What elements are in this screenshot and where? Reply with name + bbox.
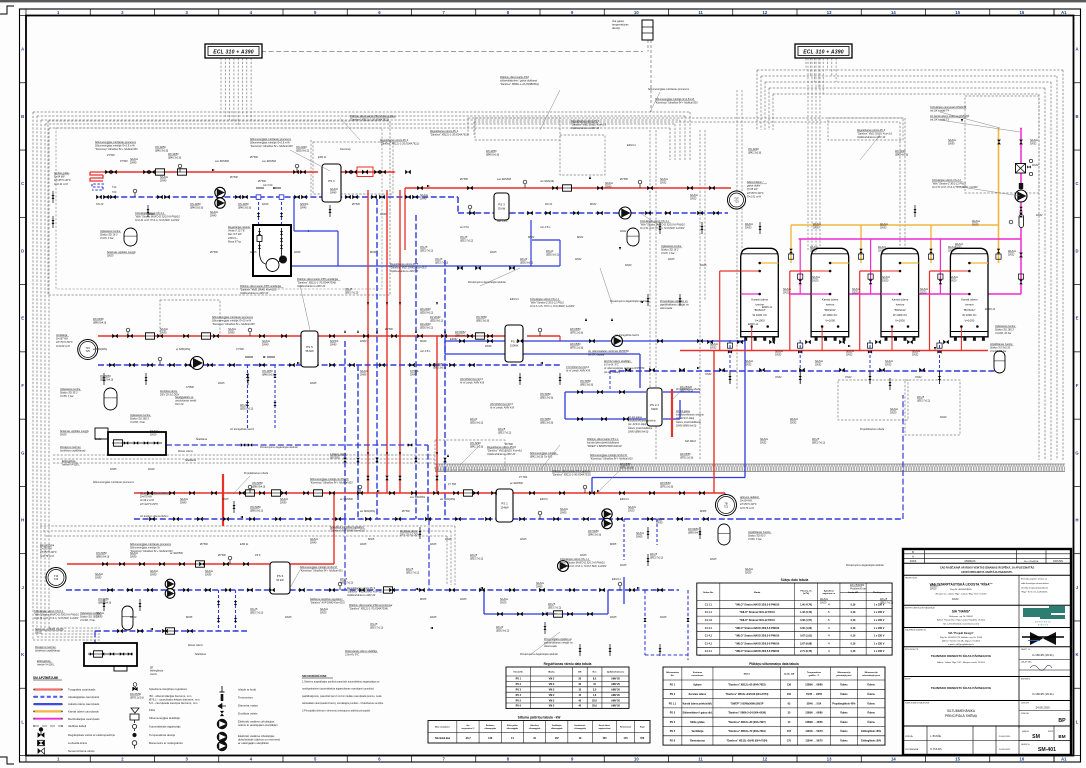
- svg-text:DN60: DN60: [360, 340, 367, 343]
- svg-text:DN25: DN25: [360, 543, 367, 546]
- svg-text:24.08.2020.: 24.08.2020.: [1036, 706, 1051, 710]
- svg-text:PS 3: PS 3: [498, 203, 505, 207]
- svg-text:Statico SU 160.3: Statico SU 160.3: [995, 329, 1014, 332]
- svg-text:Siltuma patēriņu tabula - kW: Siltuma patēriņu tabula - kW: [518, 716, 561, 720]
- svg-text:NAXAL: NAXAL: [846, 350, 855, 353]
- svg-text:Potablev/0 bar.: Potablev/0 bar.: [850, 588, 867, 591]
- svg-text:T25: T25: [85, 349, 90, 353]
- svg-text:A: A: [1075, 47, 1078, 52]
- svg-text:RV 6: RV 6: [516, 705, 522, 708]
- svg-text:KODS: KODS: [910, 561, 917, 563]
- svg-text:"Danfoss" VM2, DN40, Kvs=16,0: "Danfoss" VM2, DN40, Kvs=16,0: [390, 267, 427, 270]
- svg-text:AMV 20: AMV 20: [611, 678, 620, 681]
- svg-text:E3M 11: E3M 11: [240, 543, 249, 546]
- svg-text:DN20: DN20: [950, 280, 957, 283]
- svg-text:PS 6: PS 6: [670, 739, 676, 742]
- svg-text:10: 10: [634, 10, 639, 15]
- svg-text:ON 40/50: ON 40/50: [190, 203, 201, 206]
- svg-text:DN40: DN40: [420, 198, 427, 201]
- svg-text:NAXAL: NAXAL: [280, 498, 289, 501]
- svg-text:DN25: DN25: [890, 412, 897, 415]
- svg-text:(Ø33,7x3,2): (Ø33,7x3,2): [250, 612, 264, 615]
- svg-text:ais SDN(WG): ais SDN(WG): [440, 498, 455, 501]
- svg-text:ON 50/50: ON 50/50: [580, 380, 591, 383]
- svg-text:primārajā pusē: primārajā pusē: [836, 675, 852, 677]
- svg-text:Marka: Marka: [754, 592, 761, 594]
- svg-text:NAXAL: NAXAL: [852, 288, 861, 291]
- svg-text:Ar ūdensspējīgas sistēmas DN50: Ar ūdensspējīgas sistēmas DN50/50: [603, 367, 645, 370]
- svg-text:(Ø26,9x3,2): (Ø26,9x3,2): [470, 422, 484, 425]
- svg-text:tvertne V=100 L: tvertne V=100 L: [37, 664, 55, 667]
- svg-text:DN50: DN50: [130, 556, 137, 559]
- svg-text:ON 40/50: ON 40/50: [262, 370, 273, 373]
- svg-text:Ventilācija: Ventilācija: [691, 730, 704, 733]
- svg-text:LDNAXAL: LDNAXAL: [930, 584, 942, 587]
- svg-text:tvertne V=100 L: tvertne V=100 L: [62, 464, 80, 467]
- svg-text:Venta V 10.7 E: Venta V 10.7 E: [228, 230, 245, 233]
- svg-text:Sorbās grīdas: Sorbās grīdas: [54, 172, 70, 175]
- svg-text:VM 2: VM 2: [549, 678, 555, 681]
- svg-text:(Ø26,9x3,2): (Ø26,9x3,2): [420, 312, 434, 315]
- svg-text:ØY500: ØY500: [199, 543, 208, 546]
- svg-text:"WILO" Stratos MAXO 32/0,5-8 P: "WILO" Stratos MAXO 32/0,5-8 PN6/10: [735, 650, 780, 653]
- svg-text:DN33: DN33: [948, 250, 955, 253]
- svg-text:NAXAL: NAXAL: [690, 194, 699, 197]
- svg-text:W 1000 XC: W 1000 XC: [823, 313, 837, 317]
- svg-text:15: 15: [955, 10, 960, 15]
- svg-text:Ūdens priekšsildīšanai: Ūdens priekšsildīšanai: [676, 421, 701, 424]
- svg-text:vidēi draudzīgas infrastruktūr: vidēi draudzīgas infrastruktūras: [1021, 582, 1049, 585]
- svg-text:ECL 310 + A390: ECL 310 + A390: [213, 50, 254, 56]
- svg-text:DN25: DN25: [710, 558, 717, 561]
- svg-text:DN65: DN65: [110, 468, 117, 471]
- svg-text:Izpildmehānisms AMV 20: Izpildmehānisms AMV 20: [487, 453, 516, 456]
- svg-text:AMV 20: AMV 20: [611, 689, 620, 692]
- svg-text:RAXAL: RAXAL: [955, 243, 964, 246]
- svg-text:A: A: [21, 47, 24, 52]
- svg-text:Pirmsmēģāta uzpildes un: Pirmsmēģāta uzpildes un: [544, 638, 573, 641]
- svg-text:"Danfoss" XB12L-1-50 (004A7532: "Danfoss" XB12L-1-50 (004A7532): [552, 474, 591, 477]
- svg-text:E0M8-12: E0M8-12: [985, 308, 996, 311]
- svg-text:13: 13: [827, 757, 832, 762]
- svg-text:B: B: [1075, 114, 1078, 119]
- svg-text:BN32: BN32: [590, 203, 597, 206]
- svg-text:papildinājumos, paredzēti par: papildinājumos, paredzēti par 2 cm/mm li…: [302, 695, 382, 698]
- svg-text:NAXAL: NAXAL: [500, 598, 509, 601]
- svg-text:ESMU: ESMU: [450, 338, 457, 341]
- svg-text:SM: SM: [1032, 734, 1040, 740]
- svg-text:AMV 20: AMV 20: [611, 705, 620, 708]
- svg-text:DN25: DN25: [35, 632, 42, 635]
- svg-text:"WILO" Stratos MAXO 32/0,5-8 P: "WILO" Stratos MAXO 32/0,5-8 PN6/10: [735, 635, 780, 638]
- svg-text:V=80l, 3 bar.: V=80l, 3 bar.: [748, 538, 762, 541]
- svg-text:Plākšņu siltummainis PS5 venti: Plākšņu siltummainis PS5 ventilācijai: [297, 278, 338, 281]
- svg-text:DN 25: DN 25: [470, 554, 478, 557]
- svg-text:G=1,51 m³/h: G=1,51 m³/h: [747, 195, 762, 198]
- svg-text:DN 40/50: DN 40/50: [486, 150, 497, 153]
- svg-text:Neatīgpakārts ar: Neatīgpakārts ar: [175, 396, 194, 399]
- svg-text:"Danfoss" XB12L+24/0,96 (004+7: "Danfoss" XB12L+24/0,96 (004+7074): [725, 693, 768, 696]
- svg-text:gaisa sildēri: gaisa sildēri: [747, 185, 761, 188]
- svg-text:(Ø26,9x3,2): (Ø26,9x3,2): [430, 320, 444, 323]
- svg-text:Av. ūdenssadales sistēmas DN50: Av. ūdenssadales sistēmas DN50/50: [587, 350, 629, 353]
- svg-text:1.Meteo silēna: 1.Meteo silēna: [330, 453, 347, 456]
- svg-text:DN 20/40: DN 20/40: [420, 308, 431, 311]
- svg-text:D-18/195 (18-31): D-18/195 (18-31): [1032, 692, 1053, 696]
- svg-text:L. BUNČE: L. BUNČE: [930, 735, 941, 738]
- svg-text:(Ø33,7x3,2): (Ø33,7x3,2): [370, 627, 384, 630]
- svg-text:(Ø33,7x3,2): (Ø33,7x3,2): [880, 602, 894, 605]
- svg-text:e-pasts: pd@projektdesign.lv: e-pasts: pd@projektdesign.lv: [948, 643, 974, 646]
- svg-text:DN65: DN65: [636, 536, 643, 539]
- svg-text:NAXAL: NAXAL: [890, 408, 899, 411]
- svg-text:(Ø88,9x3,2): (Ø88,9x3,2): [250, 510, 264, 513]
- svg-text:RV 2: RV 2: [516, 683, 522, 686]
- svg-text:110/46 → 50/70: 110/46 → 50/70: [805, 739, 823, 742]
- svg-text:NAXAL: NAXAL: [636, 532, 645, 535]
- svg-text:(Ø33,7x3,2): (Ø33,7x3,2): [435, 262, 449, 265]
- svg-text:DN22: DN22: [620, 230, 627, 233]
- svg-text:DN 25: DN 25: [880, 598, 888, 601]
- svg-text:0,67 (1,61): 0,67 (1,61): [800, 635, 812, 638]
- svg-text:110/46 → 50/70: 110/46 → 50/70: [805, 730, 823, 733]
- svg-text:DN 50/80: DN 50/80: [588, 530, 599, 533]
- svg-text:Izplešanās tvertne: Izplešanās tvertne: [100, 230, 121, 233]
- svg-text:NAXAL: NAXAL: [660, 178, 669, 181]
- svg-text:sildventilatoriem / gaisa sild: sildventilatoriem / gaisa sildīšanai: [500, 80, 537, 83]
- svg-text:NAXAL: NAXAL: [882, 276, 891, 279]
- svg-text:Plākšņu siltummainis PS5 venti: Plākšņu siltummainis PS5 ventilācijai: [240, 285, 281, 288]
- svg-text:NAXAL: NAXAL: [628, 506, 637, 509]
- svg-text:No ārējiem siltuma tīkliem: No ārējiem siltuma tīkliem: [140, 492, 168, 495]
- svg-text:170: 170: [787, 739, 792, 742]
- svg-text:Q=134 kW: Q=134 kW: [740, 500, 753, 503]
- svg-text:1 x 230 V: 1 x 230 V: [874, 627, 885, 630]
- svg-text:Pievienojums degazācijas iekār: Pievienojums degazācijas iekārtai: [610, 300, 648, 303]
- svg-text:DN 65/50: DN 65/50: [620, 463, 631, 466]
- svg-text:SILTUMMEHĀNIKA: SILTUMMEHĀNIKA: [947, 709, 976, 713]
- svg-text:Ar el. piedz. AMV 435: Ar el. piedz. AMV 435: [489, 407, 515, 410]
- svg-text:Q=35 kW: Q=35 kW: [747, 188, 758, 191]
- svg-text:G=0,76 m³/h: G=0,76 m³/h: [40, 555, 55, 558]
- svg-text:"Wilo" Stratos MAXO-D 32/0,5-8: "Wilo" Stratos MAXO-D 32/0,5-8 PN6/10: [135, 216, 180, 219]
- svg-text:NAXAL: NAXAL: [1030, 139, 1039, 142]
- svg-text:DV 20/40: DV 20/40: [430, 316, 441, 319]
- svg-text:DN32: DN32: [885, 364, 892, 367]
- svg-text:Siltumenerģijas skaitītājs: Siltumenerģijas skaitītājs: [149, 715, 180, 720]
- svg-text:NAXAL: NAXAL: [95, 573, 104, 576]
- svg-text:AMV 20: AMV 20: [611, 694, 620, 697]
- svg-text:Drošības vārsts: Drošības vārsts: [400, 530, 418, 533]
- svg-text:DN 32: DN 32: [545, 203, 553, 206]
- svg-text:nosaukums: nosaukums: [691, 675, 704, 677]
- svg-text:Izpildmehānisms AMV 20: Izpildmehānisms AMV 20: [347, 594, 376, 597]
- svg-text:Pelēcušanās ūdens skaitītājs: Pelēcušanās ūdens skaitītājs: [345, 650, 378, 653]
- svg-text:Izplešanās tvertne: Izplešanās tvertne: [60, 388, 81, 391]
- svg-text:(Ø88,9x4,0): (Ø88,9x4,0): [98, 602, 112, 605]
- svg-text:ON 25: ON 25: [250, 608, 258, 611]
- svg-text:Marka: Marka: [744, 674, 751, 676]
- svg-text:ON 80/50: ON 80/50: [96, 552, 107, 555]
- svg-text:attīstība starptautiskajā lido: attīstība starptautiskajā lidostā: [1021, 586, 1049, 589]
- svg-text:C1 1.1: C1 1.1: [705, 603, 713, 606]
- svg-text:63kW: 63kW: [651, 407, 658, 411]
- svg-text:Karstā ūdens cauruļvads: Karstā ūdens cauruļvads: [68, 710, 99, 714]
- svg-text:"Danfoss" XB12L-1-20 (004A7521: "Danfoss" XB12L-1-20 (004A7521): [350, 119, 389, 122]
- svg-text:ØY500: ØY500: [249, 156, 258, 159]
- svg-text:14: 14: [891, 10, 896, 15]
- svg-text:(Ø42,3x3,6): (Ø42,3x3,6): [748, 152, 762, 155]
- svg-text:0,60 (1,03): 0,60 (1,03): [800, 627, 812, 630]
- svg-text:Karstā ūdens: Karstā ūdens: [961, 298, 978, 302]
- svg-text:DN20: DN20: [783, 292, 790, 295]
- svg-text:BŪVE: BŪVE: [905, 678, 911, 681]
- svg-text:Kalorifera: Kalorifera: [530, 725, 539, 727]
- svg-text:Cirkulācijas sūknis CS 2.2: Cirkulācijas sūknis CS 2.2: [932, 179, 962, 182]
- svg-text:DN25: DN25: [700, 264, 707, 267]
- svg-text:Adrese: Palasta iela 7, Rīga,: Adrese: Palasta iela 7, Rīga, Latvijas R…: [937, 619, 985, 622]
- svg-text:ON 50/50: ON 50/50: [540, 418, 551, 421]
- svg-text:RAXAL: RAXAL: [1008, 250, 1017, 253]
- svg-text:(Ø88,9x4,0): (Ø88,9x4,0): [252, 486, 266, 489]
- svg-text:"Danfoss" XB12L-1-20 (004A7521: "Danfoss" XB12L-1-20 (004A7521): [430, 134, 469, 137]
- svg-text:DN25: DN25: [660, 616, 667, 619]
- svg-text:DN32: DN32: [660, 182, 667, 185]
- svg-text:(Ø88,9x4,0): (Ø88,9x4,0): [100, 379, 114, 382]
- svg-text:NAXAL: NAXAL: [310, 538, 319, 541]
- svg-text:DN25: DN25: [668, 258, 675, 261]
- svg-text:NAXAL: NAXAL: [815, 360, 824, 363]
- svg-text:NAXAL: NAXAL: [950, 276, 959, 279]
- svg-text:(Ø33,7x3,2): (Ø33,7x3,2): [650, 557, 664, 560]
- svg-text:Pievienojums degazācijas iekār: Pievienojums degazācijas iekārtai: [260, 446, 298, 449]
- svg-text:V=140l, 10 bar.: V=140l, 10 bar.: [990, 350, 1007, 353]
- svg-text:PY 500: PY 500: [519, 476, 528, 479]
- svg-text:ΔT=70°C-50°C: ΔT=70°C-50°C: [55, 341, 73, 344]
- svg-text:Sistēmas uzpildes mezgls: Sistēmas uzpildes mezgls: [60, 430, 90, 433]
- svg-text:ØY500: ØY500: [351, 203, 360, 206]
- svg-text:Satītāma starpības regulators: Satītāma starpības regulators: [310, 598, 343, 601]
- svg-text:Karstā ūdens: Karstā ūdens: [892, 298, 909, 302]
- svg-text:Turpgaitas cauruļvads: Turpgaitas cauruļvads: [68, 688, 96, 692]
- svg-text:Diametra maiņa: Diametra maiņa: [238, 704, 258, 708]
- svg-text:sas SDN500: sas SDN500: [262, 160, 277, 163]
- svg-text:B I R O J S: B I R O J S: [1038, 624, 1049, 626]
- svg-text:ECL 310 + A390: ECL 310 + A390: [803, 50, 844, 56]
- svg-text:T26: T26: [54, 577, 59, 581]
- svg-text:(Ø48,3x3,6): (Ø48,3x3,6): [238, 207, 252, 210]
- svg-text:ON 32/40: ON 32/40: [470, 442, 481, 445]
- svg-text:PASŪT. Nr.: PASŪT. Nr.: [1021, 648, 1031, 651]
- svg-text:Ūdens: Ūdens: [867, 721, 875, 724]
- svg-text:ΔT=45°C-40°C: ΔT=45°C-40°C: [53, 179, 71, 182]
- svg-text:Ūdens: Ūdens: [840, 730, 848, 733]
- svg-text:BN22: BN22: [577, 236, 584, 239]
- svg-text:BN22: BN22: [528, 236, 535, 239]
- svg-text:Aukstā ūdens cauruļvads: Aukstā ūdens cauruļvads: [68, 702, 100, 706]
- svg-text:Ūdens: Ūdens: [840, 684, 848, 687]
- svg-text:RAXAL: RAXAL: [813, 223, 822, 226]
- svg-text:"WILO" Stratos MAXO 32/0,5-8 P: "WILO" Stratos MAXO 32/0,5-8 PN6/10: [735, 603, 780, 606]
- svg-text:Sūkņu datu tabula: Sūkņu datu tabula: [781, 578, 809, 582]
- svg-text:Uz atmēglikola tvertni: Uz atmēglikola tvertni: [230, 428, 254, 431]
- svg-text:siltumapgāde: siltumapgāde: [551, 727, 563, 730]
- svg-text:VM 2: VM 2: [549, 683, 555, 686]
- svg-text:H: H: [21, 518, 24, 523]
- svg-text:ESM 9: ESM 9: [540, 498, 548, 501]
- svg-text:Karstā ūdens: Karstā ūdens: [599, 724, 610, 727]
- svg-text:Plākšņu siltummainis PS6 remon: Plākšņu siltummainis PS6 remontzonai: [349, 604, 393, 607]
- svg-text:Izpildmehānisms AMV 10: Izpildmehānisms AMV 10: [571, 127, 600, 130]
- svg-text:BŪRS: BŪRS: [1048, 730, 1054, 733]
- svg-text:Statico SD 35.3: Statico SD 35.3: [60, 392, 78, 395]
- svg-text:0,16: 0,16: [851, 642, 856, 645]
- svg-text:NAXAL: NAXAL: [536, 582, 545, 585]
- svg-text:PS 1: PS 1: [501, 502, 508, 506]
- svg-text:(Ø76,1x3,6): (Ø76,1x3,6): [660, 486, 674, 489]
- svg-text:DN40: DN40: [330, 192, 337, 195]
- svg-text:OLV 20: OLV 20: [175, 403, 184, 406]
- svg-text:NAXAL: NAXAL: [745, 360, 754, 363]
- svg-text:Ūdens: Ūdens: [840, 739, 848, 742]
- svg-text:Recirkulācijas cauruļvads: Recirkulācijas cauruļvads: [68, 717, 100, 721]
- svg-text:No.: No.: [671, 675, 675, 677]
- svg-text:PS 2: PS 2: [511, 340, 518, 344]
- svg-text:ØY500: ØY500: [229, 176, 238, 179]
- svg-text:T23: T23: [734, 200, 739, 204]
- svg-text:air 0.5m: air 0.5m: [460, 226, 469, 229]
- svg-text:16: 16: [1020, 10, 1025, 15]
- svg-text:W 1000 XC: W 1000 XC: [753, 313, 767, 317]
- svg-text:PS 4: PS 4: [670, 721, 676, 724]
- svg-text:ØY500: ØY500: [217, 554, 226, 557]
- svg-text:ar SDN(WG): ar SDN(WG): [93, 348, 107, 351]
- svg-text:1 x 230 V: 1 x 230 V: [874, 611, 885, 614]
- svg-text:Ūdens: Ūdens: [840, 721, 848, 724]
- svg-text:15: 15: [955, 757, 960, 762]
- svg-text:CAD RASĒJUMĀ AR ROKU VEIKTAS I: CAD RASĒJUMĀ AR ROKU VEIKTAS IZMAIŅAS IR…: [940, 566, 1035, 570]
- svg-text:tsk.UK sadalīt T4: tsk.UK sadalīt T4: [930, 110, 950, 113]
- svg-text:DN20: DN20: [920, 292, 927, 295]
- svg-text:DN32: DN32: [1036, 214, 1043, 217]
- svg-text:170: 170: [624, 737, 629, 740]
- svg-text:Ar el. piedz. AMV 435: Ar el. piedz. AMV 435: [459, 382, 485, 385]
- svg-text:etilēnglikola: etilēnglikola: [150, 670, 164, 673]
- svg-text:ūdensvada: ūdensvada: [660, 307, 673, 310]
- svg-text:DN 80/50: DN 80/50: [93, 318, 104, 321]
- svg-text:ON32: ON32: [915, 376, 922, 379]
- svg-text:12: 12: [763, 757, 768, 762]
- svg-text:NAXAL: NAXAL: [210, 211, 219, 214]
- svg-text:A1: A1: [1061, 10, 1067, 15]
- svg-text:sas SDN500: sas SDN500: [497, 178, 512, 181]
- svg-text:Kondicionēš.: Kondicionēš.: [574, 724, 586, 727]
- svg-text:RAXAL: RAXAL: [880, 223, 889, 226]
- svg-text:ON 50/50: ON 50/50: [433, 363, 444, 366]
- svg-text:RV 3: RV 3: [516, 689, 522, 692]
- svg-text:(Ø76,1x3,6): (Ø76,1x3,6): [570, 347, 584, 350]
- svg-text:Drošības vārsts: Drošības vārsts: [160, 390, 178, 393]
- svg-text:T2b: T2b: [112, 191, 117, 194]
- svg-text:Q=14 kW: Q=14 kW: [54, 176, 65, 179]
- svg-text:DN 20: DN 20: [546, 250, 554, 253]
- svg-text:Izplešanās tvertne: Izplešanās tvertne: [130, 414, 151, 417]
- svg-text:"Wilo" Stratos-Z 30/1-12 PN10: "Wilo" Stratos-Z 30/1-12 PN10: [932, 183, 966, 186]
- svg-text:Plākšņu siltummainis PS3: Plākšņu siltummainis PS3: [500, 76, 529, 79]
- svg-text:NAXAL: NAXAL: [130, 552, 139, 555]
- svg-text:Sistēmas uzpildes mezgls: Sistēmas uzpildes mezgls: [107, 251, 137, 254]
- svg-text:Plākšņu siltummaiņu data tabul: Plākšņu siltummaiņu data tabula: [749, 662, 799, 666]
- svg-text:16: 16: [1020, 757, 1025, 762]
- svg-text:(Ø26,9x3,2): (Ø26,9x3,2): [240, 408, 254, 411]
- svg-text:"Danfoss" VM2, DN25, Kvs=8,0: "Danfoss" VM2, DN25, Kvs=8,0: [487, 450, 523, 453]
- svg-text:BP: BP: [1058, 718, 1066, 724]
- svg-text:DN40: DN40: [130, 162, 137, 165]
- svg-text:Ūdens: Ūdens: [867, 712, 875, 715]
- svg-text:Plākšņu siltummainis PS 1 apku: Plākšņu siltummainis PS 1 apkurei: [552, 470, 591, 473]
- svg-text:DN 20: DN 20: [496, 626, 504, 629]
- svg-text:Statico 5.0 5x0,10: Statico 5.0 5x0,10: [990, 347, 1011, 350]
- svg-text:G=1,57 m³/h; H=4 m; N=0,36kW;: G=1,57 m³/h; H=4 m; N=0,36kW; 1x230V: [932, 186, 978, 189]
- svg-text:13: 13: [827, 10, 832, 15]
- svg-text:DN40: DN40: [310, 542, 317, 545]
- svg-text:V=1000: V=1000: [895, 318, 905, 322]
- svg-text:DN 25/DN60: DN 25/DN60: [850, 584, 865, 587]
- svg-text:Karstā ūdens: Karstā ūdens: [822, 298, 839, 302]
- svg-text:BN25: BN25: [368, 538, 375, 541]
- svg-text:DN50: DN50: [280, 502, 287, 505]
- svg-text:(Ø26,9x3,2): (Ø26,9x3,2): [496, 630, 510, 633]
- svg-text:Ventilācija: Ventilācija: [56, 334, 68, 337]
- svg-text:Q=670 kW: Q=670 kW: [140, 496, 153, 499]
- svg-text:G=5,76 m³/h; H=6 m; N=0,8 5kW;: G=5,76 m³/h; H=6 m; N=0,8 5kW; 1x230V: [560, 565, 607, 568]
- svg-text:1 x 230 V: 1 x 230 V: [874, 642, 885, 645]
- svg-text:V=140l, 3 bar.: V=140l, 3 bar.: [80, 619, 96, 622]
- svg-text:VM 2: VM 2: [549, 699, 555, 702]
- svg-text:DN33: DN33: [813, 227, 820, 230]
- svg-text:2,67 (9,68): 2,67 (9,68): [800, 642, 812, 645]
- svg-text:Ūdens: Ūdens: [840, 693, 848, 696]
- svg-text:Izplešanās tvertne: Izplešanās tvertne: [995, 325, 1016, 328]
- svg-text:(Ø76,1x3,6): (Ø76,1x3,6): [620, 467, 634, 470]
- svg-text:DN 25: DN 25: [498, 428, 506, 431]
- svg-text:Izpildmehānisms AMV 20: Izpildmehānisms AMV 20: [297, 285, 326, 288]
- svg-text:RAXAL: RAXAL: [810, 246, 819, 249]
- svg-text:TEHNISKO DIENESTU ĒKAS PĀRSEGU: TEHNISKO DIENESTU ĒKAS PĀRSEGUVE: [931, 686, 991, 690]
- svg-text:(Ø60,3x3,6): (Ø60,3x3,6): [580, 384, 594, 387]
- svg-text:Sildventilatori / gaisa sild.: Sildventilatori / gaisa sild.: [682, 712, 712, 715]
- svg-text:CH500: CH500: [186, 386, 194, 389]
- svg-text:DN25: DN25: [620, 564, 627, 567]
- svg-text:Cirkulācijas sūknis CS 2.1: Cirkulācijas sūknis CS 2.1: [530, 298, 560, 301]
- svg-text:Filtrs: Filtrs: [149, 708, 156, 712]
- svg-text:DN 25: DN 25: [406, 568, 414, 571]
- svg-text:DN20: DN20: [95, 438, 102, 441]
- svg-text:B: B: [21, 114, 24, 119]
- svg-text:av SDN500: av SDN500: [340, 498, 353, 501]
- svg-text:Jauda, kW: Jauda, kW: [784, 674, 796, 676]
- svg-text:IZSTRĀDĀJA: IZSTRĀDĀJA: [905, 748, 919, 751]
- svg-text:Uz hol gaisa: Uz hol gaisa: [676, 410, 690, 413]
- svg-text:DN40: DN40: [380, 213, 387, 216]
- svg-text:Statico SU 160.3: Statico SU 160.3: [130, 418, 149, 421]
- svg-text:Siltumenerģijas mērītājs G=2,5: Siltumenerģijas mērītājs G=2,5m³/h: [655, 98, 695, 101]
- svg-text:NAXAL: NAXAL: [656, 518, 665, 521]
- svg-text:PY500: PY500: [107, 154, 115, 157]
- svg-text:Siltumenerģijas mērītājs G=2,5: Siltumenerģijas mērītājs G=2,5 m³/h: [95, 145, 135, 148]
- svg-text:Siltumenerģijas mērītājs G=2,5: Siltumenerģijas mērītājs G=2,5 m³/h: [250, 142, 290, 145]
- svg-text:(Ø88,9x4,0): (Ø88,9x4,0): [688, 532, 702, 535]
